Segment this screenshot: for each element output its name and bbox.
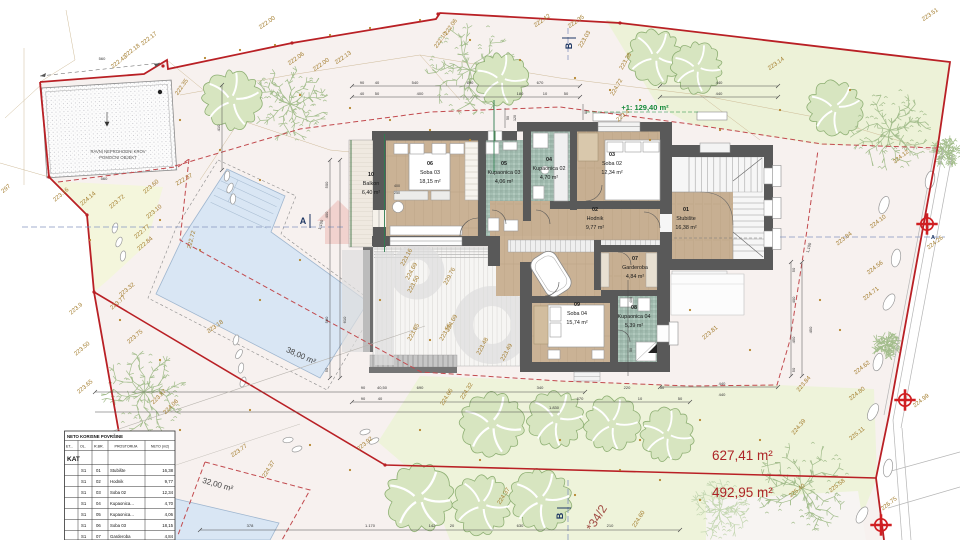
svg-text:540: 540 [412, 80, 419, 85]
svg-text:6,40 m²: 6,40 m² [362, 190, 380, 196]
svg-text:400: 400 [324, 211, 329, 218]
svg-text:18,15: 18,15 [162, 523, 173, 528]
svg-text:10: 10 [368, 172, 374, 178]
svg-text:400: 400 [629, 297, 633, 303]
svg-text:NETO KORISNE POVRŠINE: NETO KORISNE POVRŠINE [67, 434, 123, 439]
svg-text:50: 50 [660, 385, 665, 390]
svg-text:Kupaonica 02: Kupaonica 02 [533, 166, 566, 172]
svg-text:90: 90 [360, 80, 365, 85]
svg-text:06: 06 [427, 161, 433, 167]
svg-text:Soba 04: Soba 04 [567, 311, 587, 317]
svg-text:Kupaonica...: Kupaonica... [110, 512, 134, 517]
svg-text:4,70 m²: 4,70 m² [540, 175, 558, 181]
svg-text:1.830: 1.830 [549, 405, 560, 410]
svg-text:5,39 m²: 5,39 m² [625, 323, 643, 329]
svg-text:90: 90 [361, 396, 366, 401]
svg-text:NETO (m2): NETO (m2) [151, 445, 169, 449]
svg-text:560: 560 [101, 176, 108, 181]
svg-text:40: 40 [378, 396, 383, 401]
svg-text:08: 08 [631, 305, 637, 311]
svg-text:S1: S1 [81, 490, 87, 495]
svg-text:4,06 m²: 4,06 m² [495, 179, 513, 185]
svg-text:50: 50 [678, 396, 683, 401]
svg-text:Hodnik: Hodnik [587, 216, 604, 222]
svg-text:RAVNI NEPROHODNI KROV: RAVNI NEPROHODNI KROV [90, 149, 145, 154]
svg-text:02: 02 [96, 479, 101, 484]
svg-text:06: 06 [96, 523, 101, 528]
svg-text:9,77: 9,77 [165, 479, 174, 484]
svg-text:05: 05 [96, 512, 101, 517]
svg-text:10: 10 [543, 91, 548, 96]
svg-text:440: 440 [719, 381, 726, 386]
svg-text:07: 07 [96, 534, 101, 539]
svg-text:PROSTORIJA: PROSTORIJA [115, 445, 139, 449]
svg-text:Kupaonica 03: Kupaonica 03 [488, 170, 521, 176]
svg-text:690: 690 [417, 385, 424, 390]
svg-text:50: 50 [564, 91, 569, 96]
svg-text:50: 50 [791, 367, 796, 372]
svg-text:Kupaonica 04: Kupaonica 04 [618, 314, 651, 320]
svg-text:15,74 m²: 15,74 m² [566, 320, 587, 326]
svg-text:120: 120 [513, 115, 517, 121]
svg-text:400: 400 [417, 91, 424, 96]
svg-text:S1: S1 [81, 501, 87, 506]
svg-text:410: 410 [216, 124, 221, 131]
svg-text:4,84: 4,84 [165, 534, 174, 539]
svg-text:B: B [564, 42, 574, 49]
svg-text:690: 690 [467, 80, 474, 85]
svg-text:9,77 m²: 9,77 m² [586, 225, 604, 231]
svg-text:OL.: OL. [80, 445, 86, 449]
svg-text:+1: 129,40 m²: +1: 129,40 m² [621, 103, 669, 112]
svg-text:4,06: 4,06 [165, 512, 174, 517]
svg-text:16,38 m²: 16,38 m² [675, 225, 696, 231]
svg-text:440: 440 [716, 80, 723, 85]
svg-text:16,38: 16,38 [162, 468, 173, 473]
svg-text:4,84 m²: 4,84 m² [626, 274, 644, 280]
svg-text:03: 03 [96, 490, 101, 495]
svg-text:18,15 m²: 18,15 m² [419, 179, 440, 185]
svg-text:Kupaonica...: Kupaonica... [110, 501, 134, 506]
svg-text:400: 400 [394, 184, 400, 188]
svg-text:A: A [300, 216, 307, 226]
svg-text:Garderoba: Garderoba [622, 265, 648, 271]
svg-text:378: 378 [247, 523, 254, 528]
svg-text:50: 50 [324, 367, 329, 372]
svg-text:S1: S1 [81, 512, 87, 517]
svg-text:400: 400 [791, 296, 796, 303]
svg-text:40,50: 40,50 [377, 385, 388, 390]
svg-text:Hodnik: Hodnik [110, 479, 124, 484]
svg-text:210: 210 [607, 523, 614, 528]
svg-text:03: 03 [609, 152, 615, 158]
svg-text:R.BR.: R.BR. [94, 445, 104, 449]
svg-text:POMOĆNI OBJEKT: POMOĆNI OBJEKT [99, 155, 137, 160]
svg-text:4,70: 4,70 [165, 501, 174, 506]
svg-text:50: 50 [506, 116, 510, 120]
svg-text:02: 02 [592, 207, 598, 213]
svg-text:07: 07 [632, 256, 638, 262]
svg-text:630: 630 [517, 523, 524, 528]
svg-text:KAT: KAT [67, 456, 80, 463]
svg-text:S1: S1 [81, 468, 87, 473]
svg-text:450: 450 [791, 336, 796, 343]
svg-text:40: 40 [375, 80, 380, 85]
svg-text:610: 610 [342, 316, 347, 323]
svg-text:492,95 m²: 492,95 m² [712, 485, 773, 500]
svg-text:440: 440 [716, 91, 723, 96]
svg-text:Stubište: Stubište [110, 468, 126, 473]
svg-text:Balkon: Balkon [363, 181, 379, 187]
svg-text:450: 450 [808, 326, 813, 333]
svg-text:Stubište: Stubište [676, 216, 695, 222]
svg-text:670: 670 [537, 80, 544, 85]
svg-text:1.170: 1.170 [365, 523, 376, 528]
svg-text:500: 500 [324, 181, 329, 188]
svg-text:01: 01 [683, 207, 689, 213]
svg-text:627,41 m²: 627,41 m² [712, 448, 773, 463]
svg-text:50: 50 [791, 267, 796, 272]
svg-text:250: 250 [394, 191, 400, 195]
svg-text:340: 340 [537, 385, 544, 390]
svg-text:50: 50 [629, 348, 633, 352]
svg-text:50: 50 [375, 91, 380, 96]
svg-text:Soba 03: Soba 03 [110, 523, 127, 528]
svg-text:04: 04 [96, 501, 101, 506]
svg-text:20: 20 [450, 523, 455, 528]
svg-text:S1: S1 [81, 523, 87, 528]
svg-text:220: 220 [624, 385, 631, 390]
svg-text:01: 01 [96, 468, 101, 473]
svg-text:580: 580 [324, 316, 329, 323]
svg-text:440: 440 [719, 392, 726, 397]
svg-text:90: 90 [361, 385, 366, 390]
svg-text:180: 180 [517, 91, 524, 96]
svg-text:04: 04 [546, 157, 552, 163]
svg-text:12,34: 12,34 [162, 490, 173, 495]
svg-text:670: 670 [577, 396, 584, 401]
svg-text:40: 40 [360, 91, 365, 96]
svg-text:B: B [555, 512, 565, 519]
svg-text:S1: S1 [81, 534, 87, 539]
svg-text:Garderoba: Garderoba [110, 534, 131, 539]
svg-text:12,34 m²: 12,34 m² [601, 170, 622, 176]
svg-text:10: 10 [638, 396, 643, 401]
svg-text:ET...: ET... [66, 445, 73, 449]
svg-text:142: 142 [429, 523, 436, 528]
svg-text:Soba 02: Soba 02 [110, 490, 127, 495]
svg-text:560: 560 [99, 56, 106, 61]
svg-text:09: 09 [574, 302, 580, 308]
svg-text:S1: S1 [81, 479, 87, 484]
svg-text:Soba 02: Soba 02 [602, 161, 622, 167]
svg-text:Soba 03: Soba 03 [420, 170, 440, 176]
svg-text:05: 05 [501, 161, 507, 167]
